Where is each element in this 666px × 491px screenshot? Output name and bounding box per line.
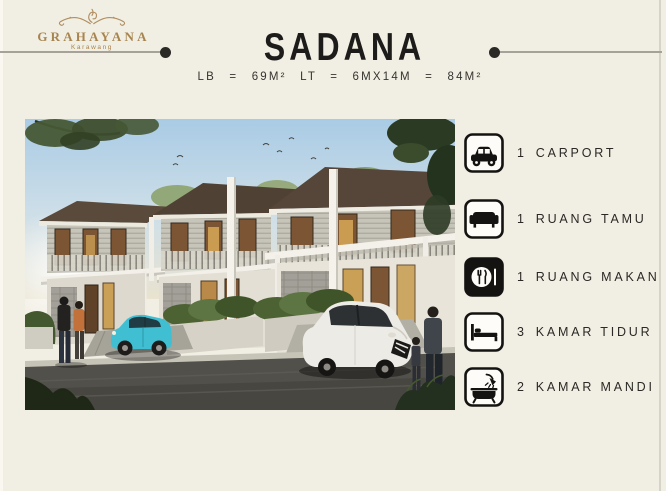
bed-icon <box>464 312 504 352</box>
dining-icon <box>464 257 504 297</box>
sofa-icon <box>464 199 504 239</box>
feature-label: 1 RUANG TAMU <box>517 212 647 226</box>
rendering-scene <box>25 119 455 410</box>
slide-left-edge <box>0 0 3 491</box>
feature-label: 3 KAMAR TIDUR <box>517 325 652 339</box>
feature-ruang-tamu: 1 RUANG TAMU <box>464 199 647 239</box>
brand-name: GRAHAYANA <box>24 30 160 44</box>
feature-kamar-mandi: 2 KAMAR MANDI <box>464 367 655 407</box>
brand-location: Karawang <box>24 44 160 51</box>
feature-ruang-makan: 1 RUANG MAKAN <box>464 257 660 297</box>
flourish-icon <box>53 6 131 30</box>
page-title: SADANA <box>204 28 482 67</box>
divider-right <box>494 51 662 53</box>
feature-label: 1 RUANG MAKAN <box>517 270 660 284</box>
slide-right-edge <box>659 0 661 491</box>
divider-left <box>0 51 166 53</box>
property-rendering-photo <box>25 119 455 410</box>
brochure-slide: GRAHAYANA Karawang SADANA LB = 69M² LT =… <box>0 0 666 491</box>
divider-right-dot <box>489 47 500 58</box>
feature-label: 2 KAMAR MANDI <box>517 380 655 394</box>
feature-kamar-tidur: 3 KAMAR TIDUR <box>464 312 652 352</box>
feature-carport: 1 CARPORT <box>464 133 616 173</box>
specs-line: LB = 69M² LT = 6MX14M = 84M² <box>123 71 557 83</box>
car-icon <box>464 133 504 173</box>
feature-label: 1 CARPORT <box>517 146 616 160</box>
brand-logo: GRAHAYANA Karawang <box>24 6 160 51</box>
bath-icon <box>464 367 504 407</box>
divider-left-dot <box>160 47 171 58</box>
